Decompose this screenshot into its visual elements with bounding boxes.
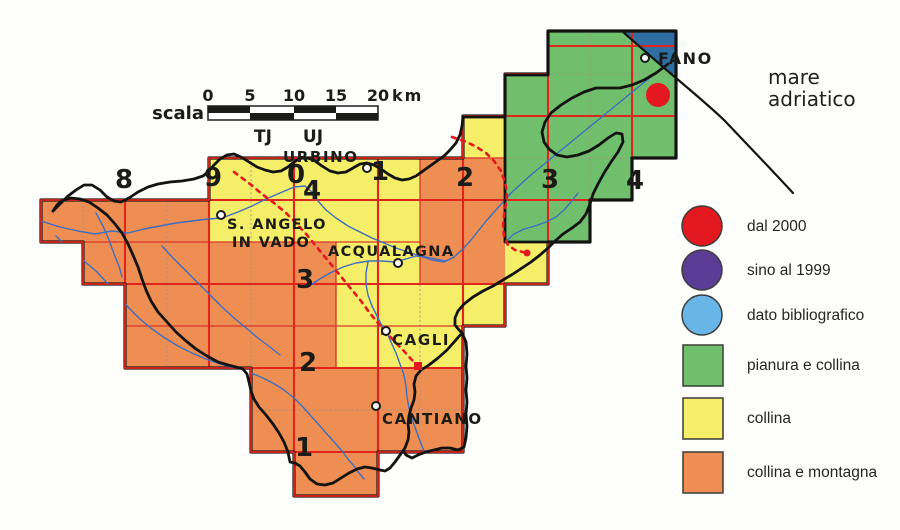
- legend-swatch-dato-bibliografico: [682, 295, 722, 335]
- legend-label: collina e montagna: [747, 464, 877, 481]
- legend-label: dal 2000: [747, 218, 807, 235]
- town-dot-s-angelo-in-vado: [217, 211, 225, 219]
- legend-swatch-pianura-e-collina: [683, 345, 723, 386]
- legend-swatch-collina: [683, 398, 723, 439]
- scale-unit: km: [392, 86, 423, 105]
- grid-row-label: 3: [296, 265, 314, 295]
- utm-zone-label-uj: UJ: [303, 127, 323, 147]
- dashed-node-east: [524, 250, 531, 257]
- scale-segment: [336, 113, 378, 120]
- town-dot-cantiano: [372, 402, 380, 410]
- dashed-node-south: [414, 362, 422, 370]
- scale-segment: [250, 113, 294, 120]
- grid-col-label: 9: [204, 163, 222, 193]
- town-label-s-angelo: S. ANGELO: [227, 217, 327, 233]
- grid-col-label: 3: [541, 165, 559, 195]
- sea-label-line2: adriatico: [768, 87, 856, 111]
- grid-row-label: 4: [303, 176, 321, 206]
- town-label-fano: FANO: [658, 49, 713, 68]
- grid-row-label: 1: [295, 433, 313, 463]
- town-dot-acqualagna: [394, 259, 402, 267]
- map-canvas: URBINO S. ANGELO IN VADO ACQUALAGNA CAGL…: [0, 0, 900, 530]
- grid-col-label: 1: [371, 157, 389, 187]
- grid-row-label: 2: [299, 348, 317, 378]
- atlas-map-page: URBINO S. ANGELO IN VADO ACQUALAGNA CAGL…: [0, 0, 900, 530]
- legend-label: sino al 1999: [747, 262, 831, 279]
- scale-tick: 0: [202, 86, 213, 105]
- town-dot-cagli: [382, 327, 390, 335]
- scale-tick: 10: [283, 86, 305, 105]
- scale-ticks: 0 5 10 15 20: [202, 86, 389, 105]
- scale-label: scala: [152, 103, 204, 124]
- collina-cell: [463, 116, 505, 158]
- scale-tick: 20: [367, 86, 389, 105]
- town-label-cantiano: CANTIANO: [382, 410, 483, 428]
- grid-col-label: 8: [115, 165, 133, 195]
- legend-label: pianura e collina: [747, 357, 860, 374]
- scale-segment: [294, 106, 336, 113]
- town-label-in-vado: IN VADO: [232, 235, 310, 251]
- legend-swatch-collina-e-montagna: [683, 452, 723, 493]
- grid-col-label: 2: [456, 163, 474, 193]
- legend: dal 2000 sino al 1999 dato bibliografico…: [682, 206, 877, 493]
- town-label-acqualagna: ACQUALAGNA: [328, 244, 454, 260]
- legend-swatch-dal-2000: [682, 206, 722, 246]
- sea-label-line1: mare: [768, 65, 820, 89]
- town-dot-urbino: [363, 164, 371, 172]
- scale-tick: 15: [325, 86, 347, 105]
- scale-tick: 5: [244, 86, 255, 105]
- record-marker-dal-2000: [646, 83, 670, 107]
- legend-label: dato bibliografico: [747, 307, 864, 324]
- utm-zone-label-tj: TJ: [254, 127, 272, 147]
- legend-swatch-sino-al-1999: [682, 250, 722, 290]
- grid-col-label: 4: [626, 166, 644, 196]
- legend-label: collina: [747, 410, 791, 427]
- town-dot-fano: [641, 54, 649, 62]
- scale-segment: [208, 106, 250, 113]
- collina-cell: [336, 284, 505, 326]
- scale-bar: scala 0 5 10 15 20 km TJ UJ: [152, 86, 423, 147]
- town-label-cagli: CAGLI: [392, 331, 450, 349]
